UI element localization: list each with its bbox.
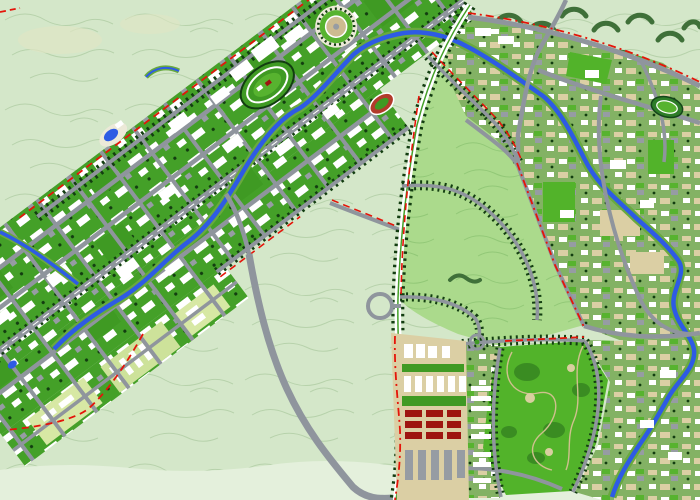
beige-patch bbox=[120, 14, 180, 34]
south-housing-district bbox=[391, 333, 469, 500]
beige-patch bbox=[18, 26, 102, 54]
map-canvas bbox=[0, 0, 700, 500]
red-roof-housing-cluster bbox=[405, 410, 461, 439]
masterplan-map bbox=[0, 0, 700, 500]
